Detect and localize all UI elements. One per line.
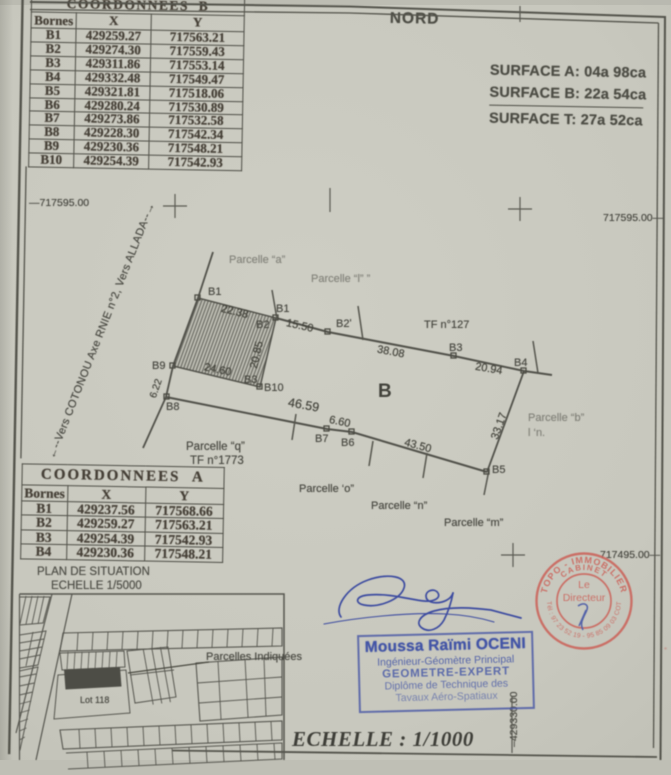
svg-text:Le: Le: [578, 579, 590, 591]
svg-text:Tél : 97 23 52 19 - 95 85 09 0: Tél : 97 23 52 19 - 95 85 09 03 COT: [545, 601, 623, 640]
svg-text:Directeur: Directeur: [563, 592, 606, 604]
